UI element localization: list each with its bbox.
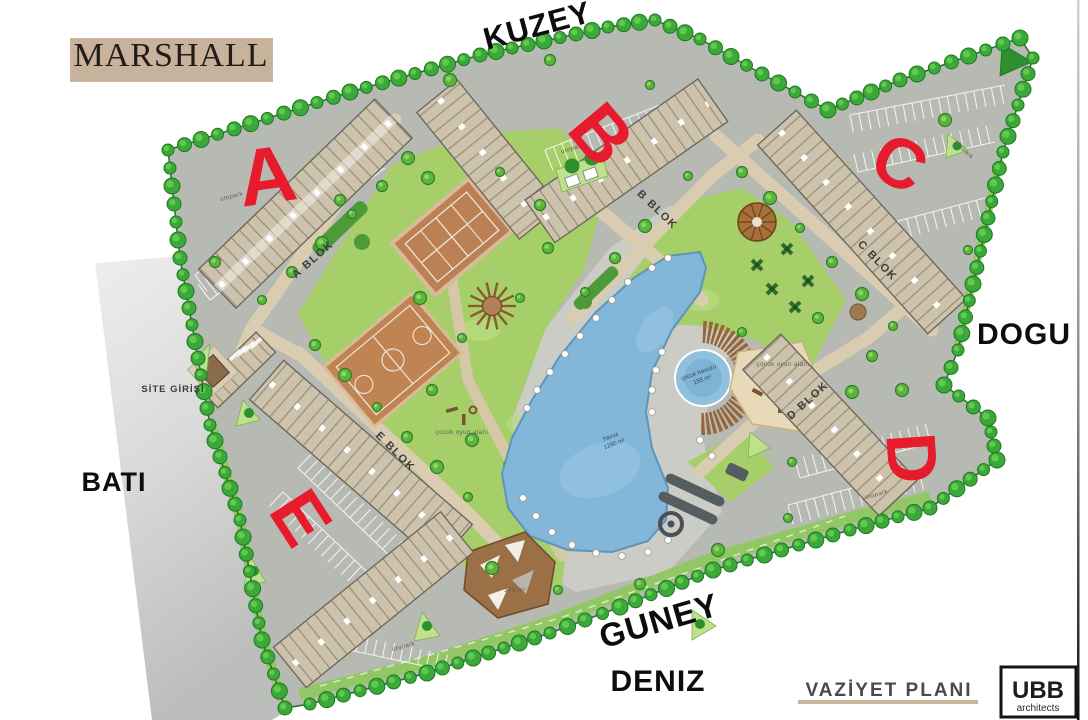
tree-icon xyxy=(258,296,267,305)
tree-highlight xyxy=(982,46,987,51)
tree-highlight xyxy=(641,222,646,227)
tree-highlight xyxy=(169,199,175,205)
tree-highlight xyxy=(337,197,341,201)
tree-highlight xyxy=(685,173,689,177)
sun-center xyxy=(483,297,502,316)
tree-highlight xyxy=(881,82,886,87)
tree-highlight xyxy=(263,652,269,658)
lounger-icon xyxy=(649,409,656,416)
playground-label: çocuk oyun alanı xyxy=(756,362,809,368)
tree-highlight xyxy=(184,303,190,309)
tree-highlight xyxy=(172,234,179,241)
tree-icon xyxy=(784,514,793,523)
tree-highlight xyxy=(433,463,438,468)
tree-highlight xyxy=(757,69,763,75)
tree-highlight xyxy=(484,648,490,654)
tree-highlight xyxy=(807,96,813,102)
tree-highlight xyxy=(982,412,989,419)
tree-highlight xyxy=(791,88,796,93)
tree-icon xyxy=(554,586,563,595)
tree-highlight xyxy=(274,685,281,692)
tree-highlight xyxy=(172,218,177,223)
tree-highlight xyxy=(979,465,984,470)
tree-highlight xyxy=(707,564,714,571)
tree-highlight xyxy=(196,134,203,141)
tree-highlight xyxy=(714,546,719,551)
tree-highlight xyxy=(815,315,819,319)
tree-highlight xyxy=(438,663,444,669)
tree-highlight xyxy=(739,169,743,173)
dry-tree-icon xyxy=(850,304,866,320)
lounger-icon xyxy=(520,495,527,502)
site-plan-page: otopark otopark otopark otopark otopark … xyxy=(0,0,1088,720)
tree-highlight xyxy=(263,114,268,119)
tree-highlight xyxy=(245,567,250,572)
tree-highlight xyxy=(631,596,637,602)
tree-highlight xyxy=(245,118,252,125)
tree-icon xyxy=(889,322,898,331)
tree-highlight xyxy=(213,130,218,135)
architect-logo: UBB architects xyxy=(1001,667,1076,717)
tree-highlight xyxy=(465,494,469,498)
tree-highlight xyxy=(1029,54,1034,59)
tree-highlight xyxy=(411,69,416,74)
tree-icon xyxy=(458,334,467,343)
tree-highlight xyxy=(965,474,971,480)
tree-icon xyxy=(684,172,693,181)
tree-highlight xyxy=(580,615,586,621)
tree-highlight xyxy=(1023,69,1029,75)
lounger-icon xyxy=(593,550,600,557)
lounger-icon xyxy=(577,333,584,340)
tree-highlight xyxy=(983,213,989,219)
tree-highlight xyxy=(965,247,969,251)
lounger-icon xyxy=(649,265,656,272)
tree-highlight xyxy=(1017,84,1024,91)
tree-highlight xyxy=(497,169,501,173)
tree-highlight xyxy=(661,583,668,590)
tree-highlight xyxy=(193,353,199,359)
lounger-icon xyxy=(649,387,656,394)
tree-highlight xyxy=(677,578,683,584)
tree-highlight xyxy=(189,336,196,343)
tree-highlight xyxy=(256,634,263,641)
tree-highlight xyxy=(848,388,853,393)
tree-highlight xyxy=(537,202,541,206)
tree-highlight xyxy=(188,321,193,326)
lounger-icon xyxy=(665,537,672,544)
park-playground-label: çocuk oyun alanı xyxy=(435,430,488,436)
tree-highlight xyxy=(339,690,345,696)
tree-highlight xyxy=(389,677,395,683)
tree-highlight xyxy=(1014,101,1019,106)
lounger-icon xyxy=(697,437,704,444)
tree-highlight xyxy=(329,92,335,98)
tree-highlight xyxy=(179,271,184,276)
tree-highlight xyxy=(898,386,903,391)
tree-highlight xyxy=(846,526,851,531)
tree-highlight xyxy=(912,68,919,75)
tree-highlight xyxy=(961,312,967,318)
lounger-icon xyxy=(593,315,600,322)
tree-highlight xyxy=(797,225,801,229)
lounger-icon xyxy=(547,369,554,376)
tree-highlight xyxy=(241,549,247,555)
tree-highlight xyxy=(362,83,367,88)
tree-highlight xyxy=(858,290,863,295)
tree-highlight xyxy=(947,57,953,63)
tree-highlight xyxy=(829,259,833,263)
tree-highlight xyxy=(166,164,171,169)
tree-highlight xyxy=(175,253,181,259)
tree-highlight xyxy=(989,441,995,447)
tree-highlight xyxy=(1008,116,1014,122)
tree-highlight xyxy=(869,353,873,357)
tree-highlight xyxy=(1002,131,1009,138)
tree-highlight xyxy=(860,520,867,527)
tree-highlight xyxy=(743,556,748,561)
lounger-icon xyxy=(524,405,531,412)
tree-highlight xyxy=(925,503,931,509)
tree-highlight xyxy=(164,146,169,151)
tree-highlight xyxy=(789,459,793,463)
tree-highlight xyxy=(877,516,883,522)
tree-highlight xyxy=(393,73,400,80)
tree-highlight xyxy=(424,174,429,179)
tree-highlight xyxy=(766,194,771,199)
tree-highlight xyxy=(224,483,231,490)
tree-highlight xyxy=(598,609,603,614)
tree-highlight xyxy=(344,86,351,93)
compass-west-label: BATI xyxy=(82,467,147,497)
site-plan-canvas: otopark otopark otopark otopark otopark … xyxy=(0,0,1088,720)
tree-highlight xyxy=(238,532,245,539)
tree-highlight xyxy=(679,27,686,34)
tree-highlight xyxy=(739,329,743,333)
tree-highlight xyxy=(460,55,465,60)
lounger-icon xyxy=(562,351,569,358)
tree-highlight xyxy=(634,17,641,24)
tree-highlight xyxy=(269,670,274,675)
tree-highlight xyxy=(951,483,958,490)
round-pergola xyxy=(738,203,776,241)
tree-highlight xyxy=(604,23,609,28)
tree-highlight xyxy=(475,50,481,56)
terrace-area-label: 375 m² xyxy=(504,588,526,594)
logo-text: MARSHALL xyxy=(73,37,268,74)
tree-highlight xyxy=(852,93,858,99)
lounger-icon xyxy=(625,279,632,286)
tree-highlight xyxy=(866,86,873,93)
tree-highlight xyxy=(197,371,202,376)
tree-highlight xyxy=(990,179,997,186)
tree-icon xyxy=(348,210,357,219)
architect-logo-subtitle: architects xyxy=(1017,703,1060,714)
tree-highlight xyxy=(251,601,257,607)
architect-logo-name: UBB xyxy=(1012,677,1064,704)
tree-highlight xyxy=(998,39,1004,45)
tree-highlight xyxy=(202,404,208,410)
tree-highlight xyxy=(349,211,353,215)
tree-highlight xyxy=(967,278,974,285)
tree-highlight xyxy=(459,335,463,339)
tree-highlight xyxy=(725,51,732,58)
tree-highlight xyxy=(280,703,286,709)
tree-highlight xyxy=(1014,32,1021,39)
tree-highlight xyxy=(956,328,963,335)
tree-highlight xyxy=(777,545,783,551)
tree-icon xyxy=(496,168,505,177)
tree-highlight xyxy=(404,154,409,159)
tree-icon xyxy=(581,288,590,297)
tree-highlight xyxy=(810,534,817,541)
tree-highlight xyxy=(612,255,616,259)
lounger-icon xyxy=(533,513,540,520)
page-border-line xyxy=(1077,0,1080,720)
tree-highlight xyxy=(517,295,521,299)
tree-highlight xyxy=(166,180,173,187)
lounger-icon xyxy=(534,387,541,394)
lounger-icon xyxy=(549,529,556,536)
tree-highlight xyxy=(180,140,186,146)
tree-highlight xyxy=(374,404,378,408)
tree-highlight xyxy=(446,76,451,81)
tree-highlight xyxy=(954,346,959,351)
tree-highlight xyxy=(822,104,829,111)
tree-highlight xyxy=(255,619,260,624)
tree-highlight xyxy=(500,644,505,649)
tree-highlight xyxy=(946,363,952,369)
tree-highlight xyxy=(279,108,285,114)
tree-highlight xyxy=(215,452,221,458)
tree-highlight xyxy=(406,673,411,678)
tree-highlight xyxy=(665,22,671,28)
tree-highlight xyxy=(371,681,378,688)
tree-highlight xyxy=(229,124,235,130)
tree-highlight xyxy=(647,591,652,596)
tree-highlight xyxy=(546,629,551,634)
tree-highlight xyxy=(955,392,960,397)
tree-highlight xyxy=(356,687,361,692)
tree-highlight xyxy=(230,499,236,505)
tree-icon xyxy=(738,328,747,337)
tree-highlight xyxy=(969,402,975,408)
block-d-letter: D xyxy=(871,430,952,486)
tree-highlight xyxy=(965,296,970,301)
tree-highlight xyxy=(547,57,551,61)
tree-highlight xyxy=(838,100,843,105)
tree-highlight xyxy=(468,436,473,441)
compass-east-label: DOGU xyxy=(977,318,1071,351)
tree-highlight xyxy=(908,507,915,514)
tree-highlight xyxy=(236,516,241,521)
tree-highlight xyxy=(321,694,328,701)
tree-highlight xyxy=(976,247,981,252)
tree-highlight xyxy=(711,43,717,49)
tree-highlight xyxy=(794,541,799,546)
tree-highlight xyxy=(742,61,747,66)
tree-highlight xyxy=(488,564,493,569)
tree-icon xyxy=(373,403,382,412)
lounger-icon xyxy=(569,542,576,549)
lounger-icon xyxy=(709,453,716,460)
plan-title-underline xyxy=(798,700,978,704)
tree-highlight xyxy=(416,294,421,299)
tree-highlight xyxy=(562,621,569,628)
tree-highlight xyxy=(894,513,899,518)
tree-highlight xyxy=(991,454,998,461)
tree-highlight xyxy=(454,659,459,664)
tree-highlight xyxy=(221,468,226,473)
tree-highlight xyxy=(987,428,992,433)
tree-highlight xyxy=(647,82,651,86)
tree-icon xyxy=(646,81,655,90)
lounger-icon xyxy=(665,255,672,262)
tree-highlight xyxy=(379,183,383,187)
tree-highlight xyxy=(582,289,586,293)
tree-highlight xyxy=(206,421,211,426)
tree-highlight xyxy=(972,263,978,269)
tree-highlight xyxy=(180,286,187,293)
tree-highlight xyxy=(759,549,766,556)
block-a-letter: A xyxy=(232,127,302,223)
tree-highlight xyxy=(404,434,408,438)
tree-icon xyxy=(796,224,805,233)
tree-highlight xyxy=(614,601,621,608)
tree-highlight xyxy=(963,50,970,57)
lounger-icon xyxy=(645,549,652,556)
lounger-icon xyxy=(619,553,626,560)
tree-highlight xyxy=(429,387,433,391)
tree-highlight xyxy=(999,148,1004,153)
tree-icon xyxy=(964,246,973,255)
tree-highlight xyxy=(341,371,346,376)
pergola-center xyxy=(752,217,762,227)
tree-highlight xyxy=(979,229,986,236)
tree-highlight xyxy=(421,667,428,674)
tree-highlight xyxy=(545,245,549,249)
tree-highlight xyxy=(725,560,731,566)
tree-highlight xyxy=(312,342,316,346)
tree-highlight xyxy=(938,379,945,386)
tree-highlight xyxy=(895,75,901,81)
tree-highlight xyxy=(468,652,475,659)
tree-highlight xyxy=(619,20,625,26)
tree-highlight xyxy=(637,581,641,585)
tree-highlight xyxy=(530,633,536,639)
tree-icon xyxy=(788,458,797,467)
tree-highlight xyxy=(651,16,656,21)
lounger-icon xyxy=(659,349,666,356)
plan-title-block: VAZİYET PLANI xyxy=(798,680,978,704)
tree-highlight xyxy=(313,98,318,103)
sea-label: DENIZ xyxy=(611,665,706,698)
tree-highlight xyxy=(514,637,521,644)
tree-highlight xyxy=(994,164,1000,170)
tree-highlight xyxy=(442,59,449,66)
tree-icon xyxy=(516,294,525,303)
tree-highlight xyxy=(930,64,935,69)
lounger-icon xyxy=(653,367,660,374)
tree-highlight xyxy=(941,116,946,121)
tree-highlight xyxy=(259,297,263,301)
tree-highlight xyxy=(212,259,216,263)
plan-title: VAZİYET PLANI xyxy=(805,680,972,701)
tree-highlight xyxy=(295,102,302,109)
tree-highlight xyxy=(555,587,559,591)
tree-highlight xyxy=(939,494,944,499)
tree-highlight xyxy=(209,435,216,442)
marshall-logo: MARSHALL xyxy=(70,37,273,82)
tree-highlight xyxy=(828,530,834,536)
tree-highlight xyxy=(696,35,701,40)
site-entrance-label: SİTE GİRİŞİ xyxy=(141,384,204,395)
tree-highlight xyxy=(693,572,698,577)
tree-highlight xyxy=(785,515,789,519)
lounger-icon xyxy=(609,297,616,304)
tree-highlight xyxy=(306,700,311,705)
tree-highlight xyxy=(890,323,894,327)
tree-highlight xyxy=(426,64,432,70)
tree-highlight xyxy=(773,77,780,84)
tree-highlight xyxy=(988,197,993,202)
tree-icon xyxy=(464,493,473,502)
tree-highlight xyxy=(247,583,254,590)
tree-highlight xyxy=(378,78,384,84)
